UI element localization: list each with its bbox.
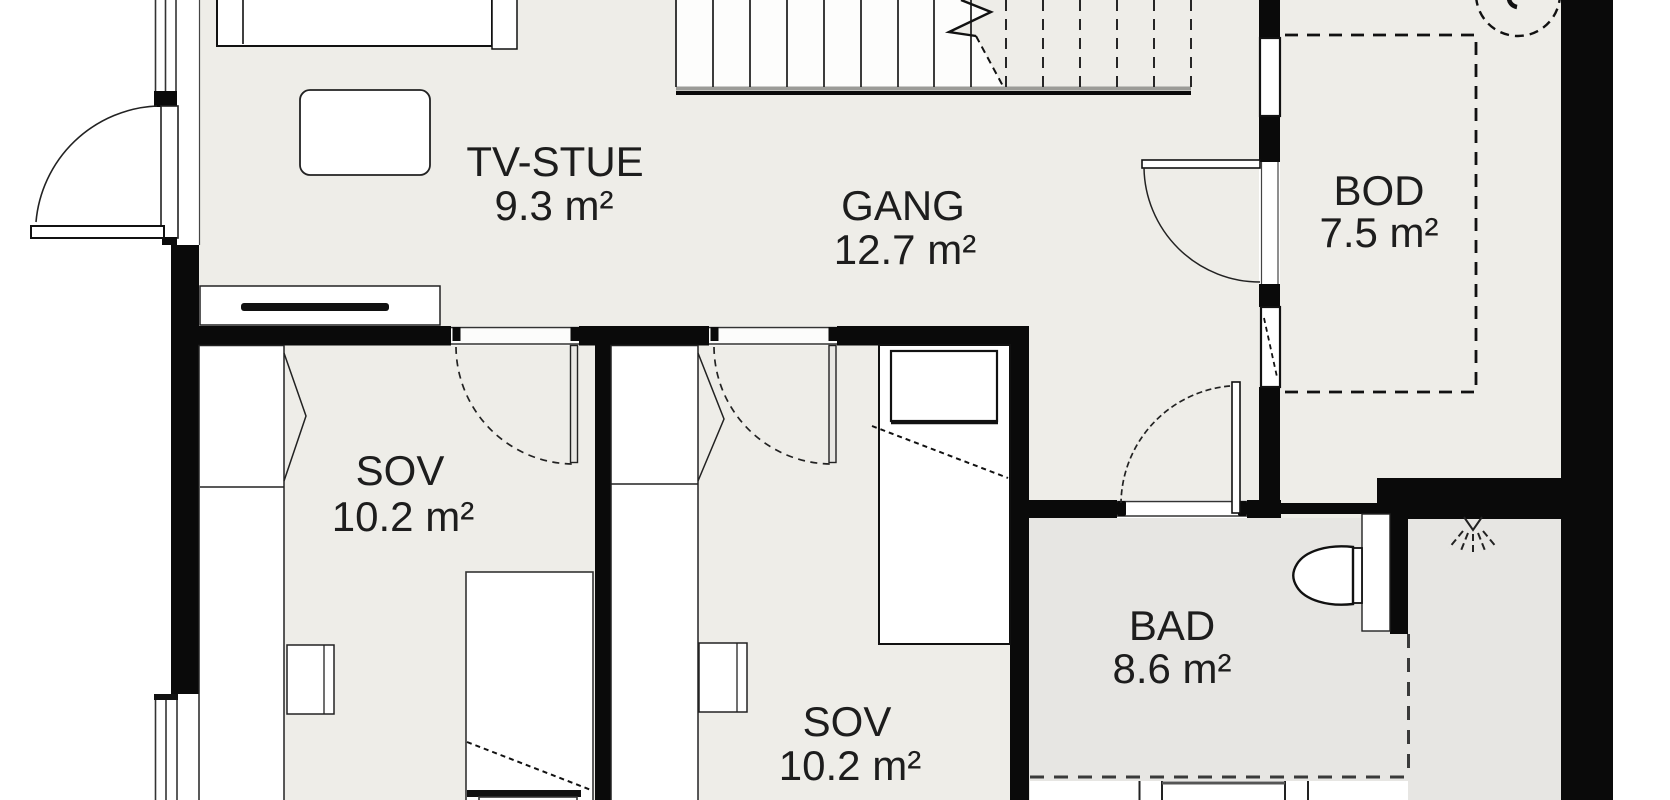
svg-text:8.6 m²: 8.6 m² xyxy=(1112,645,1231,692)
svg-text:TV-STUE: TV-STUE xyxy=(466,138,643,185)
svg-text:9.3 m²: 9.3 m² xyxy=(494,182,613,229)
svg-text:10.2 m²: 10.2 m² xyxy=(332,493,474,540)
svg-text:SOV: SOV xyxy=(803,698,892,745)
svg-text:BOD: BOD xyxy=(1333,167,1424,214)
svg-text:GANG: GANG xyxy=(841,182,965,229)
svg-text:SOV: SOV xyxy=(356,447,445,494)
svg-text:BAD: BAD xyxy=(1129,602,1215,649)
svg-text:7.5 m²: 7.5 m² xyxy=(1319,209,1438,256)
svg-text:12.7 m²: 12.7 m² xyxy=(834,226,976,273)
svg-text:10.2 m²: 10.2 m² xyxy=(779,742,921,789)
